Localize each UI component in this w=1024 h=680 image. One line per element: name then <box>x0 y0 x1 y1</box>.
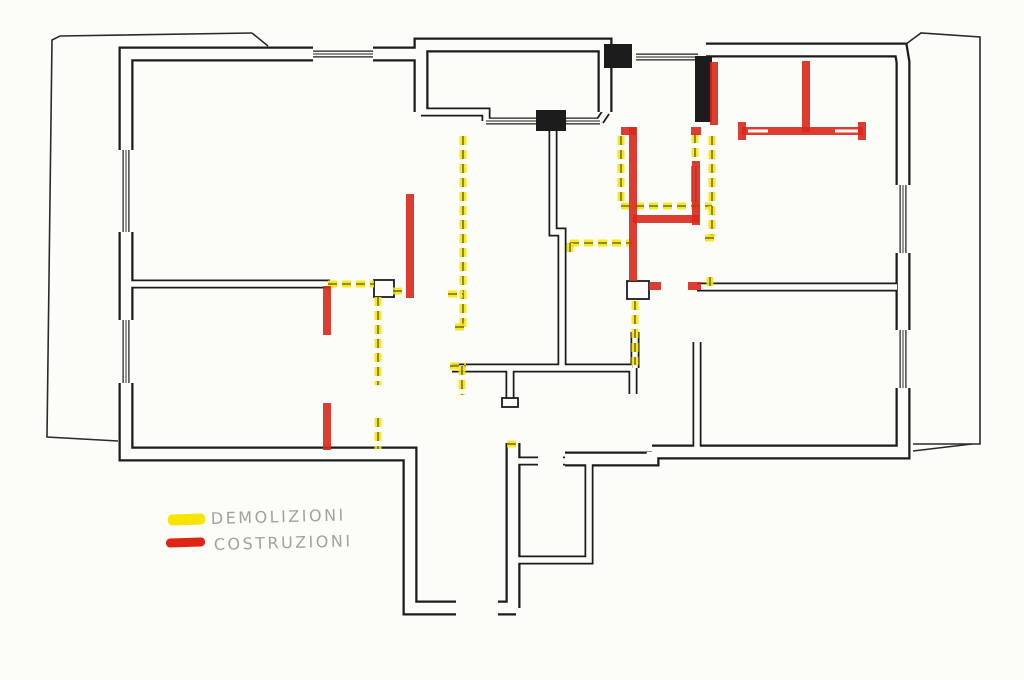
floor-plan-drawing: DEMOLIZIONI COSTRUZIONI <box>0 0 1024 680</box>
legend-costruzioni-swatch <box>166 537 205 547</box>
floor-plan-page: DEMOLIZIONI COSTRUZIONI <box>0 0 1024 680</box>
window-centerlines <box>126 54 903 388</box>
legend-costruzioni-label: COSTRUZIONI <box>214 531 353 554</box>
legend-demolizioni-label: DEMOLIZIONI <box>211 505 346 528</box>
legend-demolizioni-swatch <box>168 513 205 525</box>
legend: DEMOLIZIONI COSTRUZIONI <box>166 505 353 554</box>
